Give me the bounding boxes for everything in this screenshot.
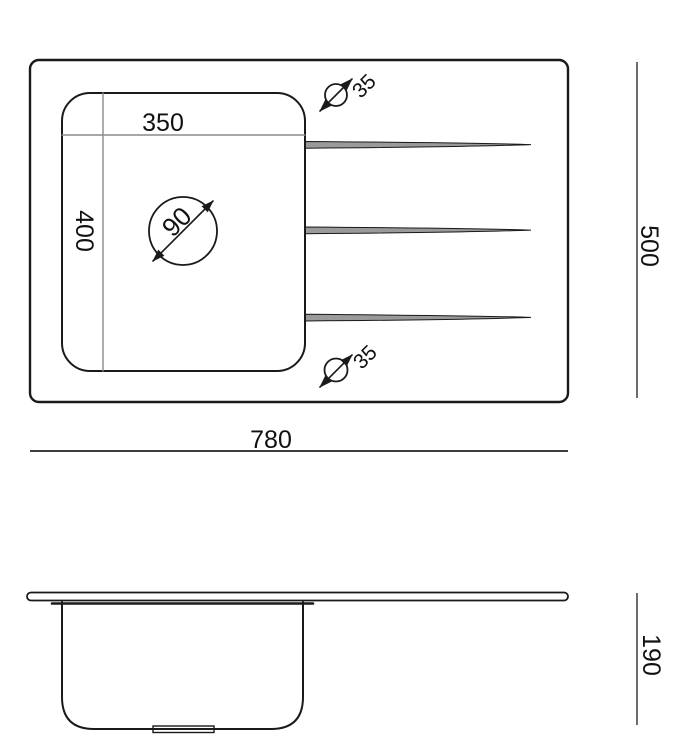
drawing-svg: 350 400 90 35 35 780 500 190 [0,0,677,747]
rim-profile [27,593,568,601]
bowl-depth-label: 400 [70,210,98,252]
side-view [27,593,568,733]
overall-depth-label: 500 [635,225,663,267]
overall-width-label: 780 [250,426,292,454]
top-view [30,60,568,402]
bowl-profile [62,602,303,729]
bowl-width-label: 350 [142,109,184,137]
sink-technical-drawing: 350 400 90 35 35 780 500 190 [0,0,677,747]
bowl-height-label: 190 [637,634,665,676]
